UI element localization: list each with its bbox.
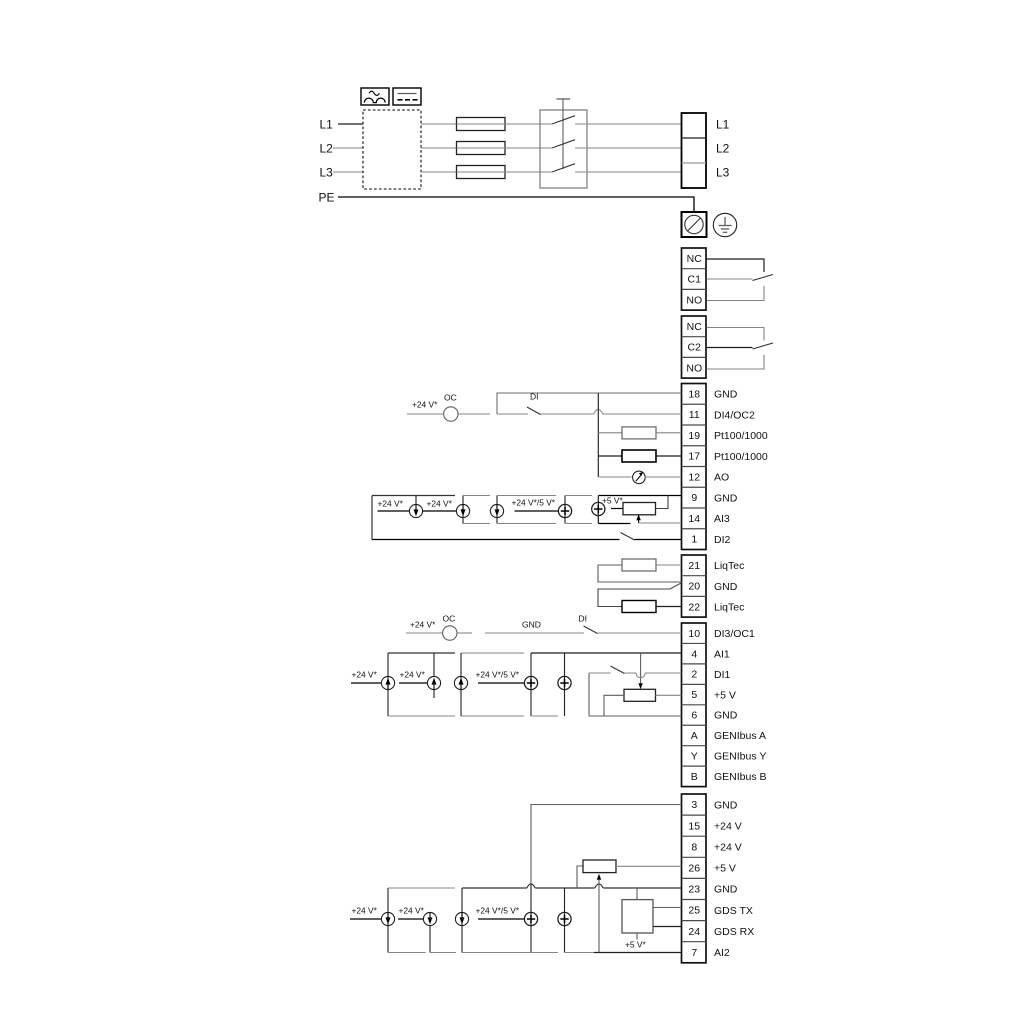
svg-text:GND: GND [714, 581, 738, 593]
svg-text:Pt100/1000: Pt100/1000 [714, 430, 768, 442]
svg-text:PE: PE [319, 190, 335, 204]
svg-text:DI1: DI1 [714, 669, 731, 681]
svg-text:DI: DI [579, 614, 588, 624]
svg-text:A: A [691, 730, 698, 742]
svg-text:C2: C2 [688, 342, 702, 354]
svg-text:NO: NO [686, 362, 702, 374]
svg-text:+5 V: +5 V [714, 863, 736, 875]
svg-text:5: 5 [691, 689, 697, 701]
svg-text:AI1: AI1 [714, 648, 730, 660]
svg-text:+24 V*: +24 V* [378, 499, 404, 509]
svg-text:8: 8 [691, 841, 697, 853]
svg-text:+24 V*/5 V*: +24 V*/5 V* [512, 498, 556, 508]
svg-text:12: 12 [688, 471, 700, 483]
svg-text:20: 20 [688, 581, 700, 593]
svg-text:AI3: AI3 [714, 513, 730, 525]
svg-text:GND: GND [714, 389, 738, 401]
svg-text:Y: Y [691, 751, 698, 763]
svg-text:6: 6 [691, 710, 697, 722]
svg-text:19: 19 [688, 430, 700, 442]
svg-text:OC: OC [443, 614, 456, 624]
svg-text:26: 26 [688, 862, 700, 874]
svg-text:GENIbus B: GENIbus B [714, 771, 767, 783]
svg-text:+24 V: +24 V [714, 820, 742, 832]
svg-text:+24 V*: +24 V* [400, 670, 426, 680]
svg-text:GDS RX: GDS RX [714, 926, 754, 938]
svg-text:+24 V*: +24 V* [352, 906, 378, 916]
svg-text:GENIbus Y: GENIbus Y [714, 751, 766, 763]
svg-text:24: 24 [688, 926, 700, 938]
svg-text:LiqTec: LiqTec [714, 601, 744, 613]
svg-text:4: 4 [691, 648, 697, 660]
svg-text:LiqTec: LiqTec [714, 560, 744, 572]
svg-text:+5 V*: +5 V* [602, 496, 623, 506]
svg-text:AO: AO [714, 472, 729, 484]
svg-text:GND: GND [714, 710, 738, 722]
svg-text:L3: L3 [320, 165, 334, 179]
svg-text:DI2: DI2 [714, 534, 731, 546]
svg-text:GND: GND [714, 799, 738, 811]
svg-text:7: 7 [691, 947, 697, 959]
svg-text:GENIbus A: GENIbus A [714, 730, 766, 742]
svg-text:+5 V*: +5 V* [625, 940, 646, 950]
svg-text:+24 V*: +24 V* [412, 399, 438, 409]
svg-text:+24 V*: +24 V* [399, 906, 425, 916]
svg-text:L1: L1 [320, 117, 334, 131]
svg-text:2: 2 [691, 669, 697, 681]
svg-text:+24 V*: +24 V* [410, 620, 436, 630]
svg-text:14: 14 [688, 513, 700, 525]
svg-text:+24 V*/5 V*: +24 V*/5 V* [476, 670, 520, 680]
svg-text:DI3/OC1: DI3/OC1 [714, 628, 755, 640]
svg-text:GDS TX: GDS TX [714, 905, 753, 917]
svg-text:3: 3 [691, 799, 697, 811]
svg-text:+24 V*: +24 V* [427, 499, 453, 509]
svg-text:DI: DI [530, 392, 539, 402]
svg-text:B: B [691, 771, 698, 783]
svg-text:GND: GND [522, 620, 541, 630]
svg-text:NC: NC [687, 253, 703, 265]
svg-text:+24 V*: +24 V* [352, 670, 378, 680]
svg-text:15: 15 [688, 820, 700, 832]
svg-text:+5 V: +5 V [714, 689, 736, 701]
svg-text:NO: NO [686, 294, 702, 306]
svg-text:AI2: AI2 [714, 947, 730, 959]
svg-text:10: 10 [688, 628, 700, 640]
svg-text:Pt100/1000: Pt100/1000 [714, 451, 768, 463]
svg-text:DI4/OC2: DI4/OC2 [714, 409, 755, 421]
svg-text:C1: C1 [688, 274, 702, 286]
svg-text:GND: GND [714, 884, 738, 896]
svg-text:22: 22 [688, 601, 700, 613]
svg-text:21: 21 [688, 560, 700, 572]
svg-text:+24 V*/5 V*: +24 V*/5 V* [476, 906, 520, 916]
svg-text:GND: GND [714, 492, 738, 504]
svg-text:L2: L2 [716, 141, 730, 155]
svg-text:25: 25 [688, 905, 700, 917]
svg-text:OC: OC [444, 392, 457, 402]
svg-text:NC: NC [687, 321, 703, 333]
svg-text:11: 11 [689, 409, 700, 421]
svg-text:18: 18 [688, 388, 700, 400]
svg-text:9: 9 [691, 492, 697, 504]
svg-text:L1: L1 [716, 117, 730, 131]
svg-text:L2: L2 [320, 141, 334, 155]
svg-text:17: 17 [688, 451, 700, 463]
svg-text:+24 V: +24 V [714, 841, 742, 853]
svg-text:1: 1 [691, 534, 697, 546]
svg-text:23: 23 [688, 884, 700, 896]
svg-text:L3: L3 [716, 165, 730, 179]
